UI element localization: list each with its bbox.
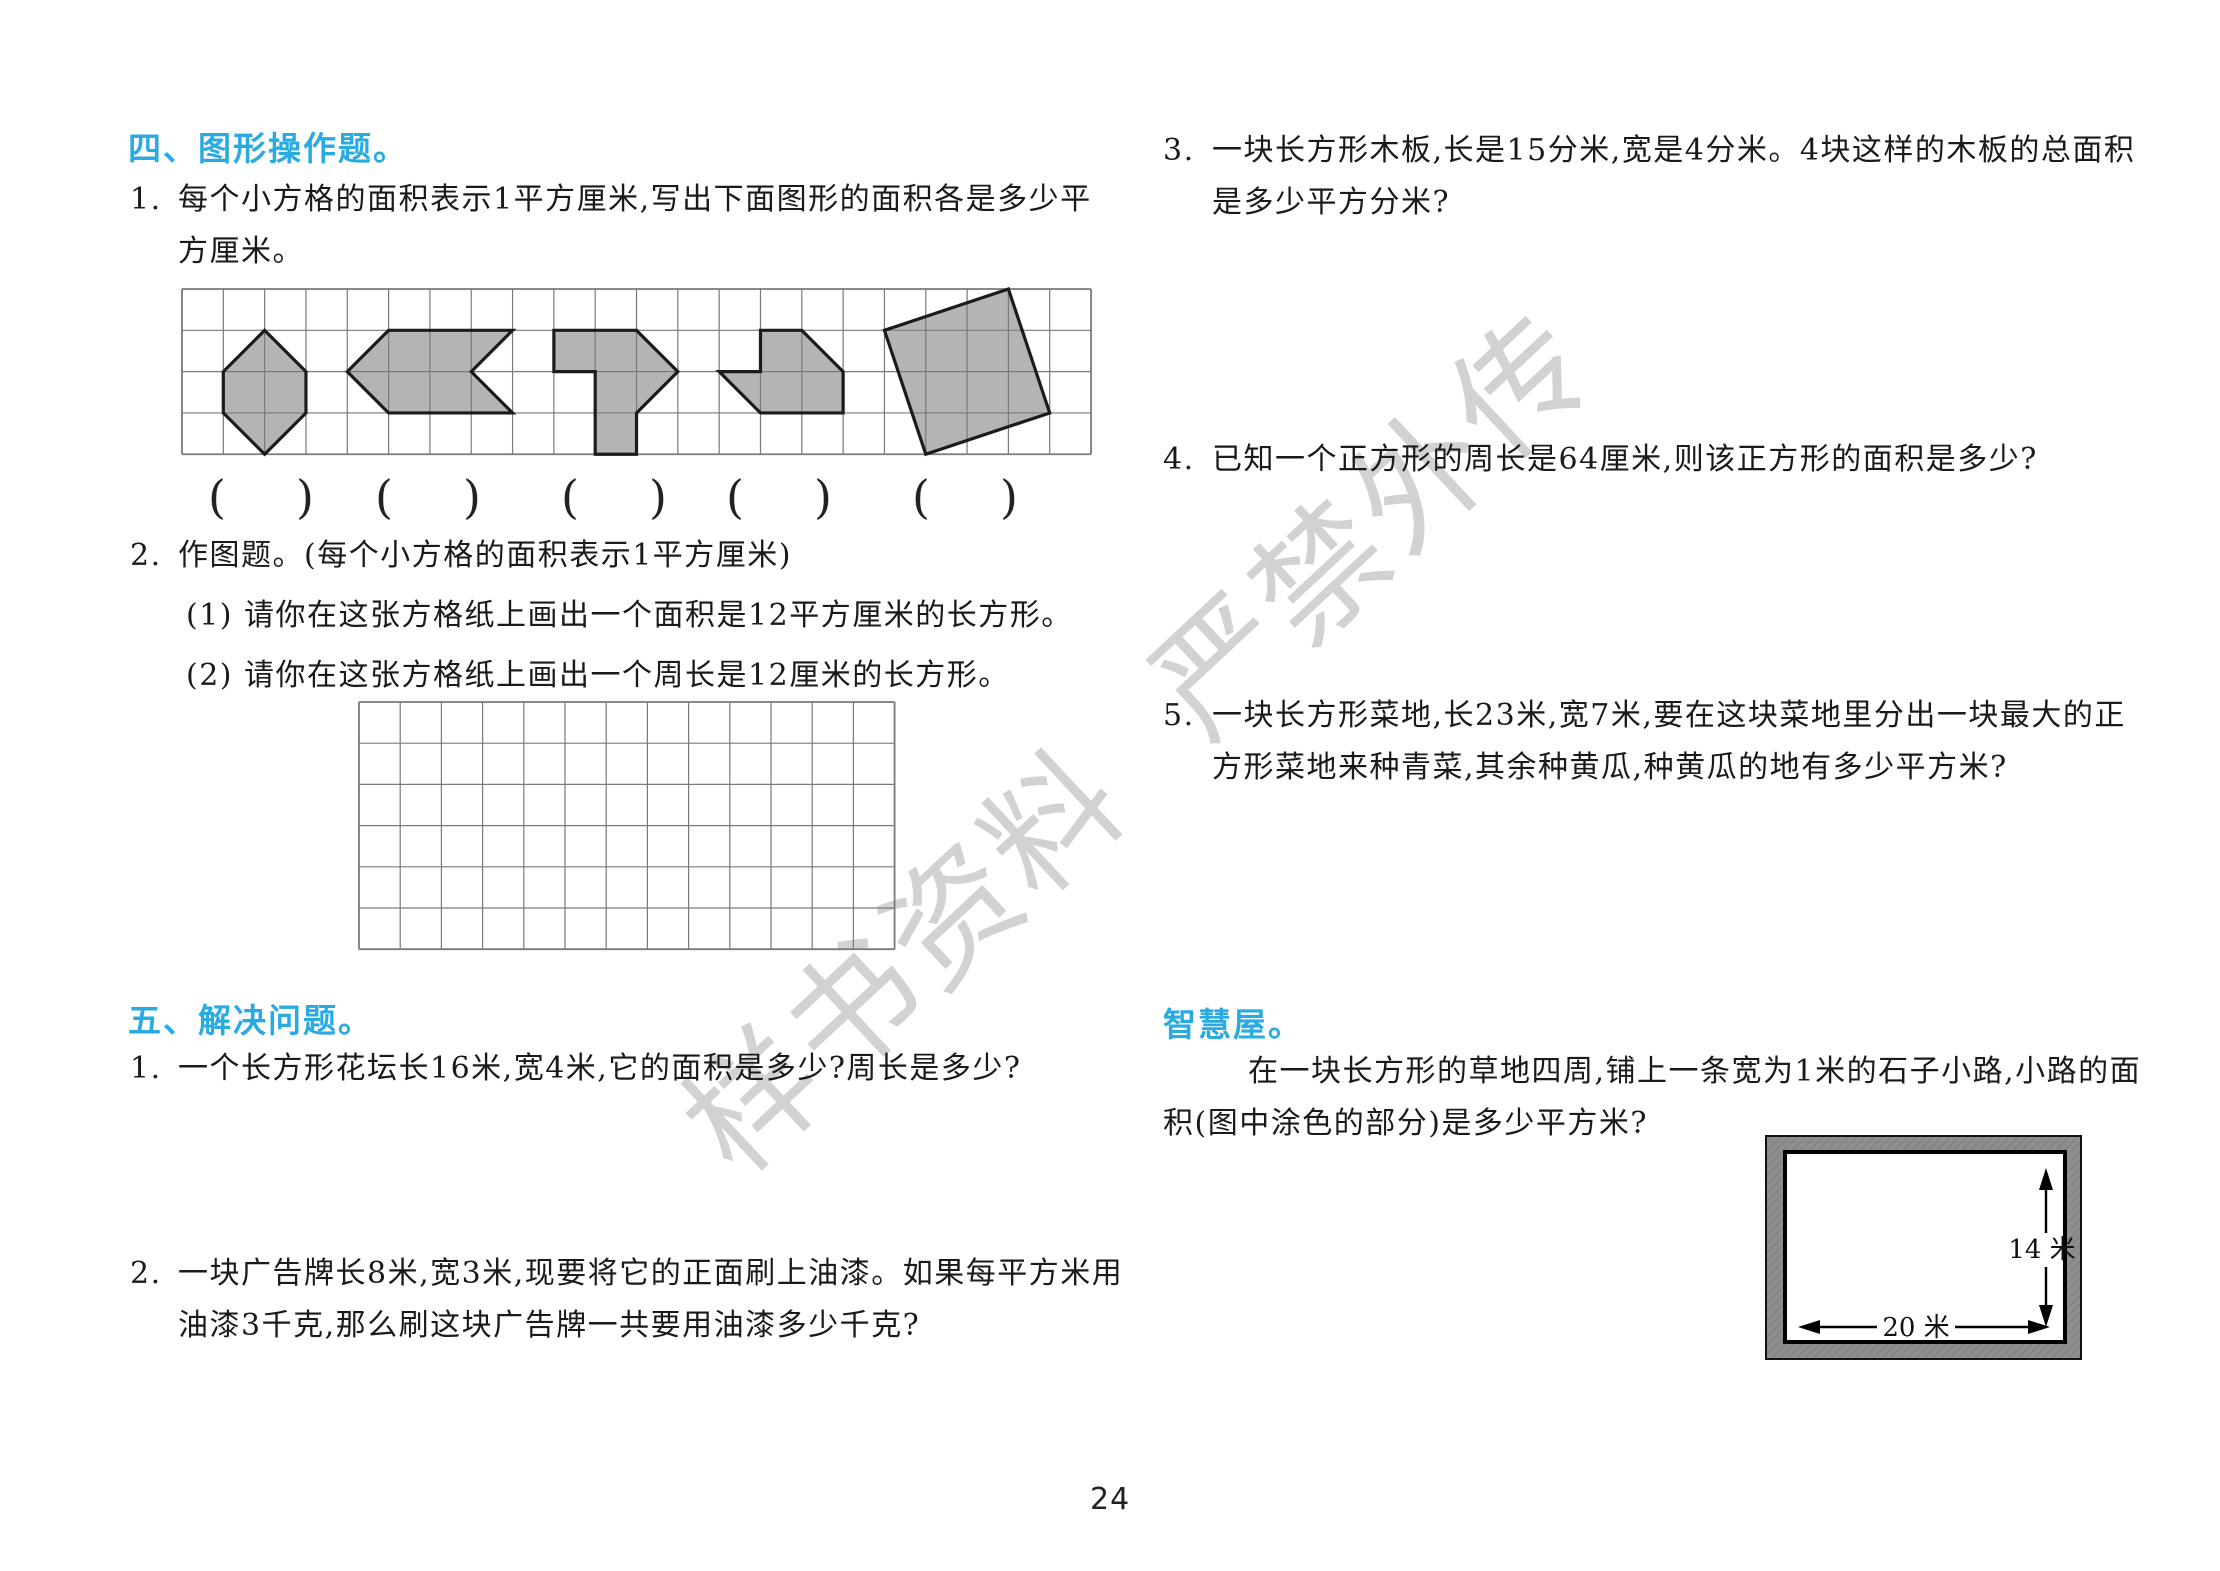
paren-close: ) [1000,474,1018,520]
wisdom-line1: 在一块长方形的草地四周,铺上一条宽为1米的石子小路,小路的面 [1248,1052,2141,1093]
drawing-grid-figure [357,700,897,956]
height-dimension-label: 14 米 [2008,1235,2075,1265]
s4-q1-line1: 每个小方格的面积表示1平方厘米,写出下面图形的面积各是多少平 [178,180,1092,221]
s5-q3-number: 3. [1163,131,1195,172]
s5-q4-number: 4. [1163,440,1195,481]
road-diagram-svg: 14 米20 米 [1765,1135,2082,1360]
paren-close: ) [814,474,832,520]
s4-q1-line2: 方厘米。 [178,232,304,273]
answer-paren-pair: () [375,474,481,520]
answer-paren-pair: () [726,474,832,520]
paren-close: ) [649,474,667,520]
answer-paren-pair: () [561,474,667,520]
s5-q4-text: 已知一个正方形的周长是64厘米,则该正方形的面积是多少? [1212,440,2038,481]
page-number: 24 [1090,1482,1130,1517]
area-grid-figure [180,287,1094,461]
s5-q2-number: 2. [130,1254,162,1295]
wisdom-heading: 智慧屋。 [1163,998,1303,1046]
s4-q2-text: 作图题。(每个小方格的面积表示1平方厘米) [178,536,792,577]
s5-q3-line1: 一块长方形木板,长是15分米,宽是4分米。4块这样的木板的总面积 [1212,131,2135,172]
grid1-svg [180,287,1094,457]
s4-q2-number: 2. [130,536,162,577]
paren-close: ) [296,474,314,520]
wisdom-line2: 积(图中涂色的部分)是多少平方米? [1163,1104,1648,1145]
s5-q3-line2: 是多少平方分米? [1212,183,1450,224]
content-layer: 四、图形操作题。 1. 每个小方格的面积表示1平方厘米,写出下面图形的面积各是多… [0,0,2220,1571]
paren-open: ( [912,474,930,520]
s5-q2-line2: 油漆3千克,那么刷这块广告牌一共要用油漆多少千克? [178,1306,920,1347]
worksheet-page: 样书资料 严禁外传 四、图形操作题。 1. 每个小方格的面积表示1平方厘米,写出… [0,0,2220,1571]
width-dimension-label: 20 米 [1882,1313,1949,1343]
s5-q5-line2: 方形菜地来种青菜,其余种黄瓜,种黄瓜的地有多少平方米? [1212,748,2008,789]
paren-open: ( [375,474,393,520]
s5-q1-text: 一个长方形花坛长16米,宽4米,它的面积是多少?周长是多少? [178,1049,1022,1090]
s5-q5-line1: 一块长方形菜地,长23米,宽7米,要在这块菜地里分出一块最大的正 [1212,696,2126,737]
grid2-svg [357,700,897,952]
section5-heading: 五、解决问题。 [128,994,373,1042]
paren-close: ) [463,474,481,520]
paren-open: ( [561,474,579,520]
s5-q2-line1: 一块广告牌长8米,宽3米,现要将它的正面刷上油漆。如果每平方米用 [178,1254,1123,1295]
paren-open: ( [726,474,744,520]
answer-paren-pair: () [208,474,314,520]
s4-q2-sub1: (1) 请你在这张方格纸上画出一个面积是12平方厘米的长方形。 [186,596,1073,637]
s5-q1-number: 1. [130,1049,162,1090]
section4-heading: 四、图形操作题。 [128,122,408,170]
answer-paren-pair: () [912,474,1018,520]
s4-q1-number: 1. [130,180,162,221]
s5-q5-number: 5. [1163,696,1195,737]
paren-open: ( [208,474,226,520]
s4-q2-sub2: (2) 请你在这张方格纸上画出一个周长是12厘米的长方形。 [186,656,1010,697]
road-diagram-figure: 14 米20 米 [1765,1135,2082,1364]
